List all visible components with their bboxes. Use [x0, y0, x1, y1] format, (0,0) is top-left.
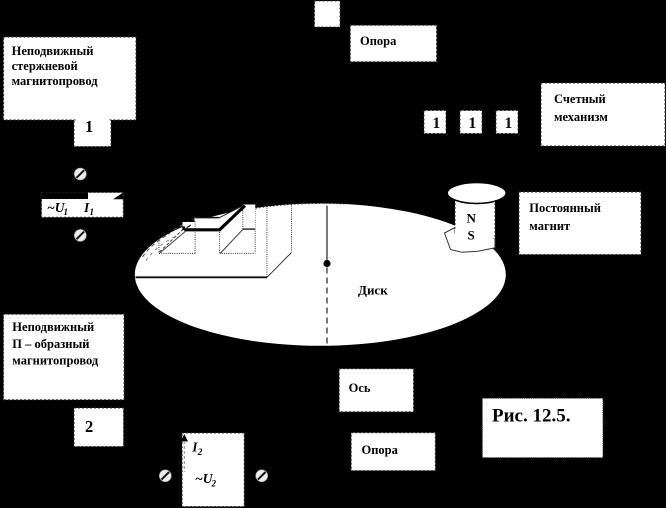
svg-text:1: 1: [90, 207, 95, 217]
svg-text:Диск: Диск: [358, 283, 388, 298]
svg-text:1: 1: [469, 115, 477, 132]
svg-text:1: 1: [433, 115, 441, 132]
svg-text:магнитопровод: магнитопровод: [12, 74, 99, 88]
svg-text:магнит: магнит: [529, 219, 570, 233]
svg-text:Неподвижный: Неподвижный: [12, 44, 94, 58]
svg-text:1: 1: [505, 115, 513, 132]
svg-text:Рис. 12.5.: Рис. 12.5.: [492, 406, 571, 427]
svg-text:Опора: Опора: [360, 34, 397, 48]
svg-text:Счетный: Счетный: [554, 92, 606, 106]
svg-text:1: 1: [85, 117, 93, 136]
svg-text:Опора: Опора: [362, 443, 399, 457]
svg-text:N: N: [467, 211, 477, 226]
svg-text:Ось: Ось: [349, 381, 371, 395]
svg-text:2: 2: [197, 447, 203, 457]
svg-text:Постоянный: Постоянный: [529, 201, 601, 215]
svg-text:2: 2: [85, 417, 93, 436]
svg-text:1: 1: [64, 207, 69, 217]
svg-text:П – образный: П – образный: [12, 337, 89, 351]
svg-text:механизм: механизм: [554, 110, 608, 124]
svg-text:стержневой: стержневой: [12, 59, 78, 73]
svg-text:Неподвижный: Неподвижный: [12, 320, 94, 334]
svg-text:2: 2: [211, 479, 217, 489]
svg-text:S: S: [468, 228, 475, 243]
svg-text:магнитопровод: магнитопровод: [12, 354, 99, 368]
